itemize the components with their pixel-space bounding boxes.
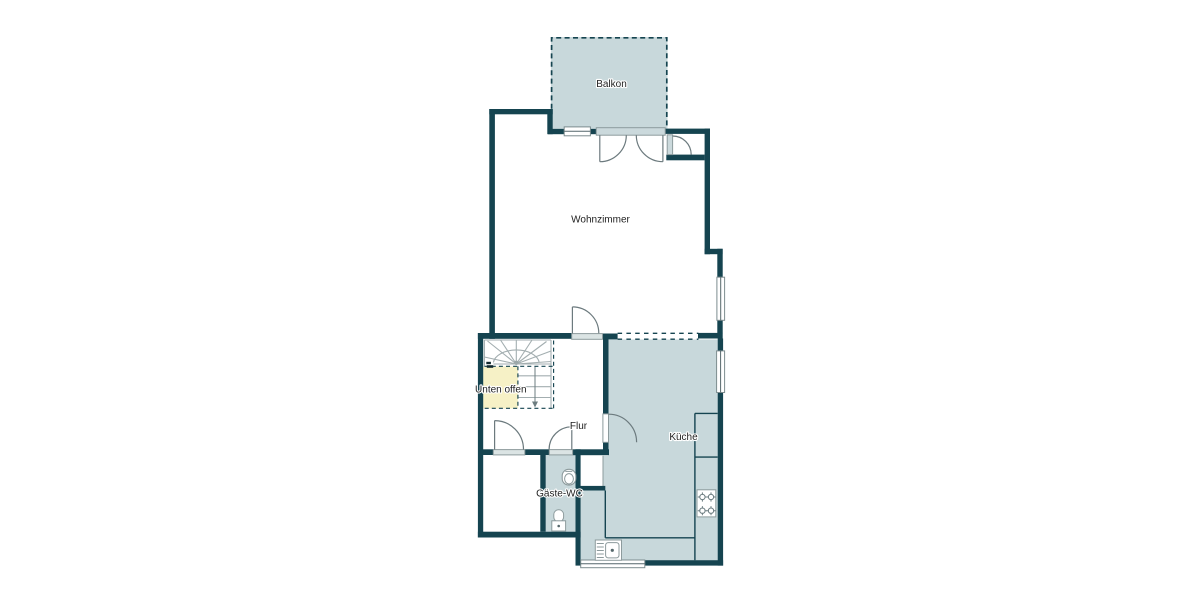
svg-text:Wohnzimmer: Wohnzimmer xyxy=(571,215,630,226)
svg-text:Balkon: Balkon xyxy=(596,79,627,90)
svg-text:Gäste-WC: Gäste-WC xyxy=(536,489,583,500)
svg-text:Küche: Küche xyxy=(669,432,698,443)
svg-text:Unten offen: Unten offen xyxy=(475,384,527,395)
svg-text:Flur: Flur xyxy=(570,421,588,432)
